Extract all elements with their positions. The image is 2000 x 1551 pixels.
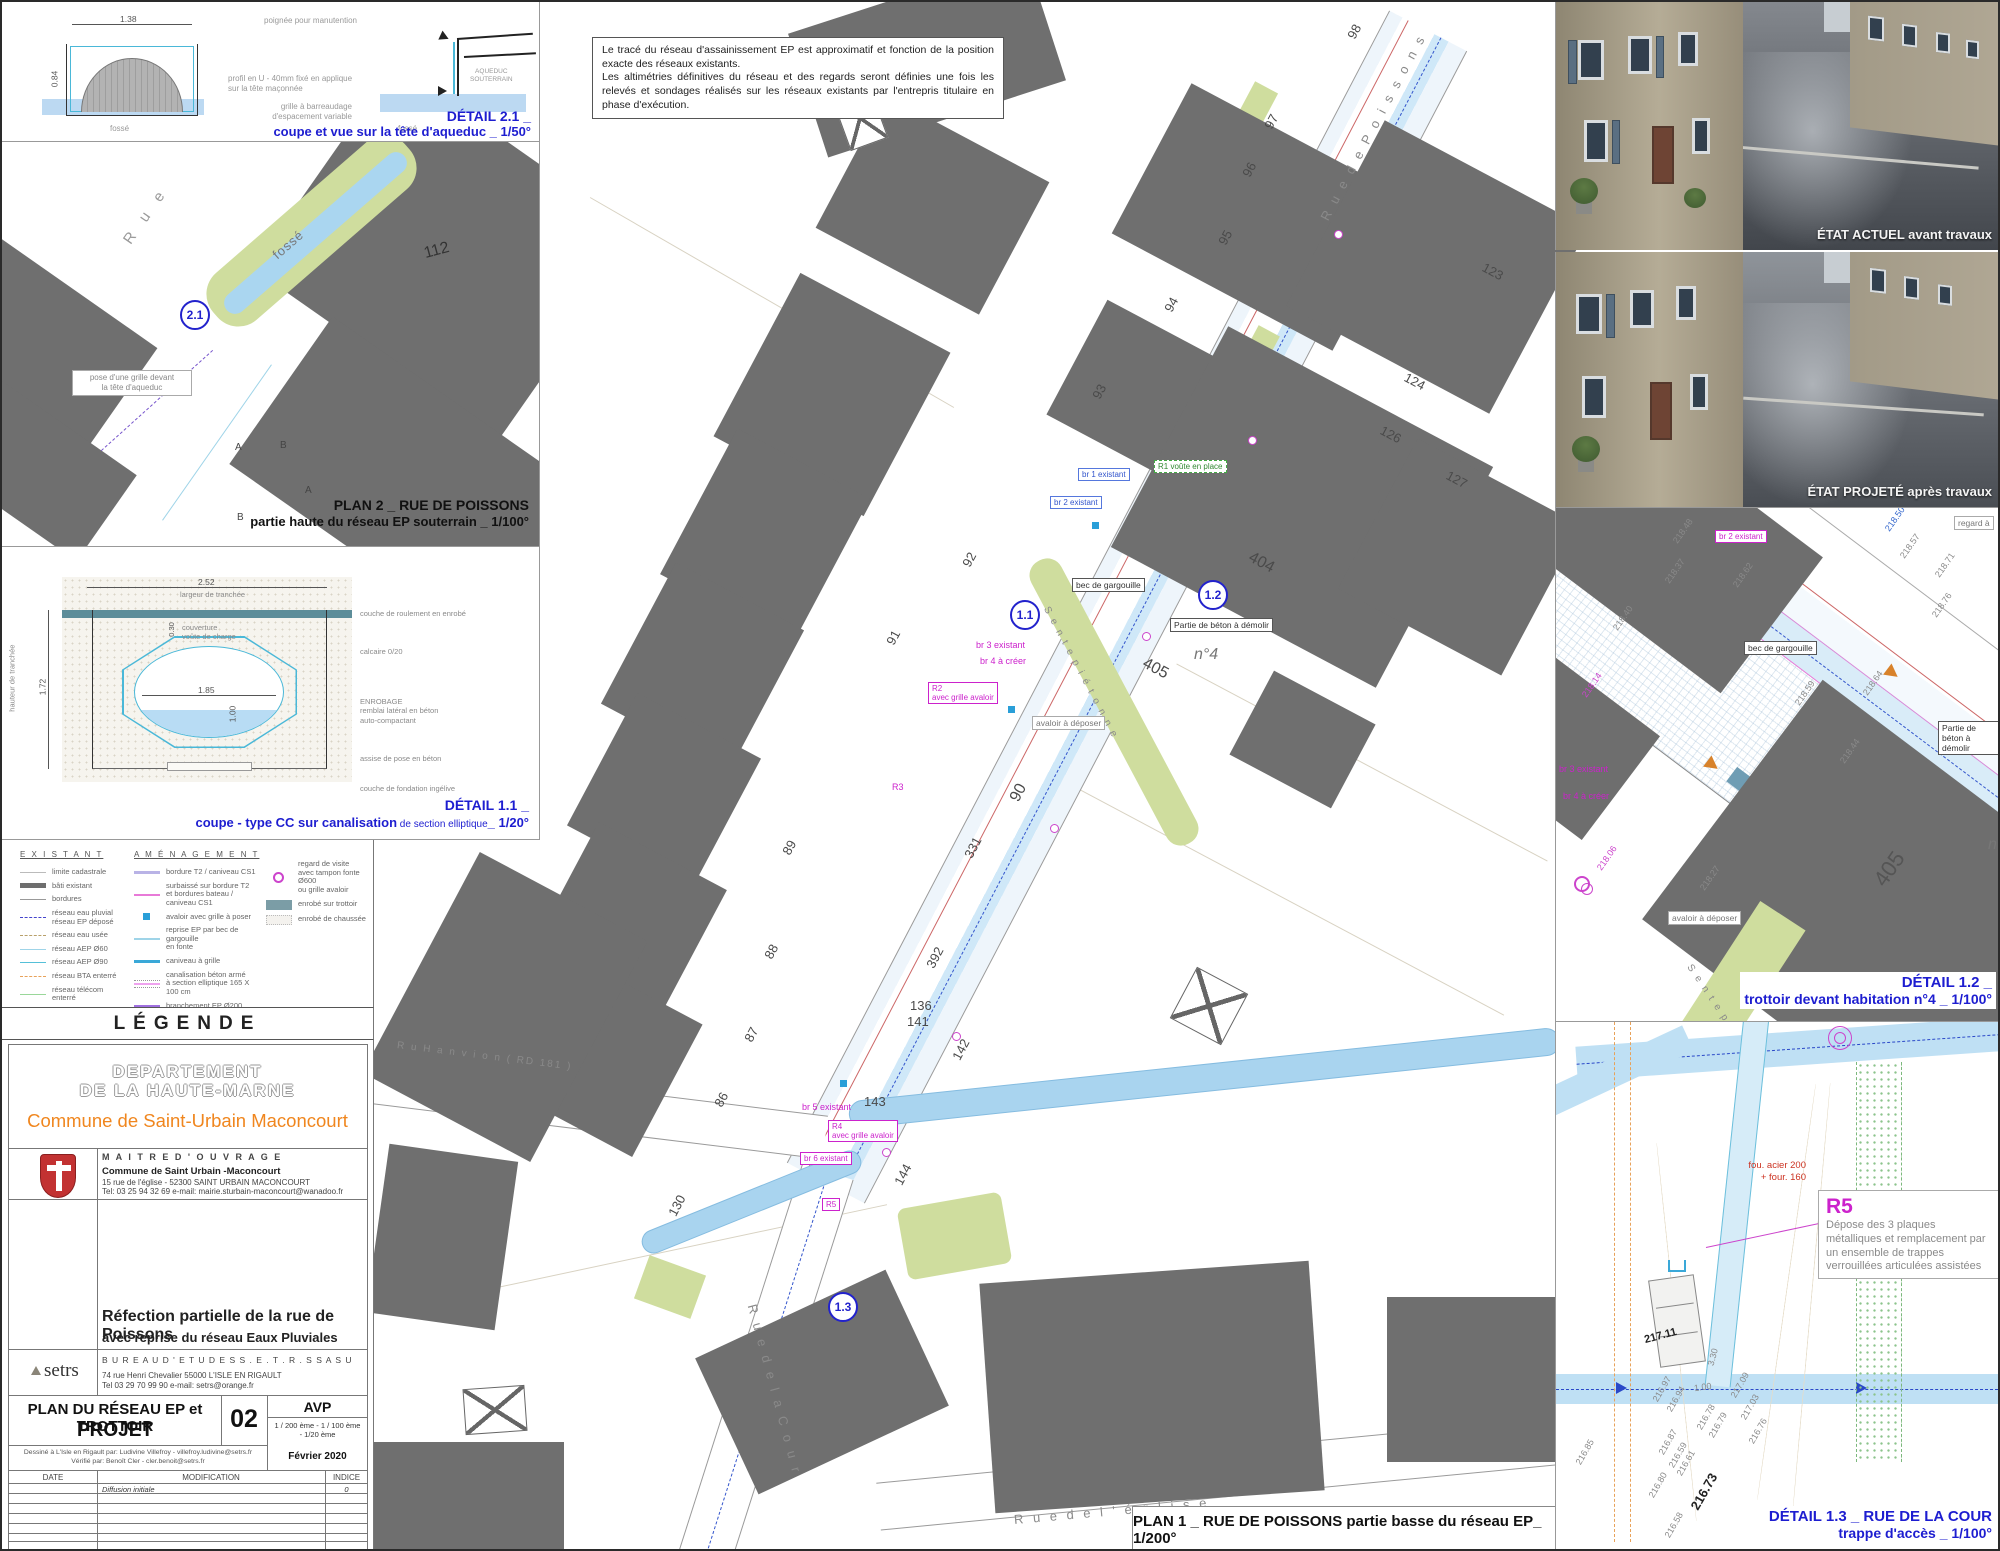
river-band: [847, 1027, 1561, 1130]
legend-item-label: canalisation béton armé à section ellipt…: [166, 971, 262, 997]
detail-reference: 2.1: [180, 300, 210, 330]
legend-item-label: réseau AEP Ø60: [52, 945, 108, 954]
building: [374, 1442, 564, 1551]
elevation-value: 216.61: [1675, 1449, 1697, 1478]
be-address: 74 rue Henri Chevalier 55000 L'ISLE EN R…: [102, 1371, 282, 1380]
detail12-subtitle: trottoir devant habitation n°4 _ 1/100°: [1744, 991, 1992, 1007]
ground-line: [457, 33, 533, 40]
manhole-symbol: [1142, 632, 1151, 641]
dim-line-v: [48, 610, 49, 769]
legend-banner: LÉGENDE: [2, 1007, 374, 1040]
legend-item: enrobé sur trottoir: [266, 900, 370, 910]
legend-swatch: [20, 883, 46, 888]
panel-detail-1-2: 218.14218.37218.40218.48218.50218.57218.…: [1555, 507, 2000, 1022]
building: [366, 1144, 518, 1330]
photo-left-facade: [1556, 2, 1743, 250]
street-name: R u e: [120, 184, 172, 248]
legend-surfaces: regard de visite avec tampon fonte Ø600 …: [266, 860, 370, 925]
cadastral-line: [1176, 663, 1547, 861]
legend-swatch: [20, 962, 46, 963]
photo-etat-actuel: ÉTAT ACTUEL avant travaux: [1555, 2, 2000, 250]
elevation-value: 216.80: [1647, 1471, 1669, 1500]
legend-item: bordures: [20, 895, 125, 904]
photo-left-facade: [1556, 252, 1743, 507]
dim-height: 0.84: [49, 71, 59, 88]
legend-swatch: [20, 935, 46, 936]
material-label: couche de fondation ingélive: [360, 784, 455, 793]
panel-detail-2-1: 1.38 0.84 fossé poignée pour manutention…: [2, 2, 540, 142]
detail13-caption: DÉTAIL 1.3 _ RUE DE LA COUR trappe d'acc…: [1765, 1506, 1996, 1543]
dim-cover: 0.30: [167, 622, 176, 637]
legend-item: avaloir avec grille à poser: [134, 913, 262, 922]
detail11-subtitle: coupe - type CC sur canalisation de sect…: [195, 815, 529, 830]
legend-item: reprise EP par bec de gargouille en font…: [134, 926, 262, 952]
legend-swatch: [20, 994, 46, 995]
dim-top-label: largeur de tranchée: [180, 590, 245, 599]
be-title: B U R E A U D ' E T U D E S S . E . T . …: [102, 1355, 353, 1365]
plan-annotation: br 1 existant: [1078, 468, 1130, 481]
legend-swatch: [20, 917, 46, 918]
parcel-number: 87: [741, 1025, 761, 1045]
elevation-value: 216.78: [1695, 1403, 1717, 1432]
detail11-subtitle-small: de section elliptique: [397, 819, 488, 830]
elevation-value: 218.71: [1933, 551, 1957, 579]
legend-amenagement: bordure T2 / caniveau CS1 surbaissé sur …: [134, 868, 262, 1010]
note-line2: Les altimétries définitives du réseau et…: [602, 71, 994, 112]
legend-item-label: réseau télécom enterré: [52, 986, 125, 1003]
material-label: couche de roulement en enrobé: [360, 609, 466, 618]
legend-item-label: reprise EP par bec de gargouille en font…: [166, 926, 262, 952]
building: [1387, 1297, 1555, 1462]
parcel-number: 91: [883, 628, 903, 648]
legend-item-label: surbaissé sur bordure T2 et bordures bat…: [166, 882, 262, 908]
contour-line: [1757, 1084, 1816, 1500]
legend-swatch: [134, 871, 160, 874]
dept-line2: DE LA HAUTE-MARNE: [2, 1081, 373, 1101]
inlet-symbol: [1092, 522, 1099, 529]
moa-address: 15 rue de l'église - 52300 SAINT URBAIN …: [102, 1178, 310, 1187]
commune-title: Commune de Saint-Urbain Maconcourt: [2, 1110, 373, 1132]
panel-plan2: R u e fossé 112 2.1 pose d'une grille de…: [2, 142, 540, 547]
gas-line: [1614, 1022, 1615, 1542]
grille-edge-line: [453, 42, 455, 94]
note-line1: Le tracé du réseau d'assainissement EP e…: [602, 44, 994, 71]
plan-sheet: 9897969594939291908988878612312412612740…: [0, 0, 2000, 1551]
building: [979, 1261, 1324, 1513]
plan2-title: PLAN 2 _ RUE DE POISSONS: [334, 497, 529, 513]
elevation-value: 218.50: [1883, 507, 1907, 533]
note-box: Le tracé du réseau d'assainissement EP e…: [592, 37, 1004, 119]
r5-note: R5 Dépose des 3 plaques métalliques et r…: [1818, 1190, 2000, 1279]
r5-text: Dépose des 3 plaques métalliques et remp…: [1826, 1219, 1994, 1274]
legend-item-label: enrobé sur trottoir: [298, 900, 357, 909]
detail11-subtitle-bold: coupe - type CC sur canalisation: [195, 815, 397, 830]
date-label: Février 2020: [267, 1451, 368, 1462]
dim-line: [87, 587, 327, 588]
legend-item: regard de visite avec tampon fonte Ø600 …: [266, 860, 370, 895]
legend-item: canalisation béton armé à section ellipt…: [134, 971, 262, 997]
manhole-symbol: [1248, 436, 1257, 445]
bta-line: [1630, 1022, 1631, 1542]
legend-item: bordure T2 / caniveau CS1: [134, 868, 262, 877]
arrow-icon: [438, 31, 450, 44]
sheet-number: 02: [221, 1405, 267, 1434]
building: [1229, 671, 1375, 809]
legend-item-label: bordures: [52, 895, 82, 904]
dim-line: [72, 24, 192, 25]
cover-label: couverture voûte de charge: [182, 623, 236, 642]
setrs-logo: setrs: [44, 1360, 79, 1382]
legend-col2-title: A M É N A G E M E N T: [134, 850, 259, 859]
poignee-label: poignée pour manutention: [264, 16, 357, 26]
plan-annotation: br 4 à créer: [980, 656, 1026, 666]
legend-swatch: [20, 872, 46, 873]
manhole-symbol: [952, 1032, 961, 1041]
stream-band: [1556, 1374, 2000, 1404]
r5-title: R5: [1826, 1195, 1994, 1219]
dim-inner-h: 1.00: [227, 706, 237, 723]
legend-swatch: [20, 949, 46, 950]
dim-left-label: hauteur de tranchée: [7, 645, 16, 712]
legend-item: réseau AEP Ø60: [20, 945, 125, 954]
legend-item: réseau AEP Ø90: [20, 958, 125, 967]
elevation-value: 218.06: [1595, 844, 1619, 872]
parcel-number: 89: [779, 838, 799, 858]
dim-line: [142, 695, 276, 696]
legend-item: réseau eau pluvial réseau EP déposé: [20, 909, 125, 926]
fourreau-label: fou. acier 200 + four. 160: [1726, 1160, 1806, 1185]
legend-item: bâti existant: [20, 882, 125, 891]
grille-callout: pose d'une grille devant la tête d'aqued…: [72, 370, 192, 396]
legend-item-label: réseau eau pluvial réseau EP déposé: [52, 909, 114, 926]
legend-item: réseau BTA enterré: [20, 972, 125, 981]
drawn-by: Dessiné à L'Isle en Rigault par: Ludivin…: [9, 1449, 267, 1456]
legend-swatch: [134, 980, 160, 988]
elevation-value: 216.87: [1657, 1428, 1679, 1457]
moa-contact: Tel: 03 25 94 32 69 e-mail: mairie.sturb…: [102, 1187, 343, 1196]
plan-annotation: R3: [892, 782, 904, 792]
parcel-number: 98: [1344, 22, 1364, 42]
legend-swatch: [134, 894, 160, 896]
plan-annotation: R2 avec grille avaloir: [928, 682, 998, 704]
detail12-caption: DÉTAIL 1.2 _ trottoir devant habitation …: [1740, 972, 1996, 1009]
cadastral-line: [1080, 789, 1504, 1015]
dim-width: 1.38: [120, 14, 137, 24]
legend-item: caniveau à grille: [134, 957, 262, 966]
elevation-value: 216.58: [1663, 1511, 1685, 1540]
legend-item-label: réseau BTA enterré: [52, 972, 116, 981]
access-trap-plates: [1648, 1274, 1706, 1368]
legend-swatch: [266, 900, 292, 910]
legend-swatch: [134, 960, 160, 963]
inlet-symbol: [840, 1080, 847, 1087]
legend-swatch: [143, 913, 150, 920]
th-modification: MODIFICATION: [97, 1473, 325, 1482]
flow-arrow-icon: [1616, 1382, 1627, 1394]
plan-annotation: br 3 existant: [976, 640, 1025, 650]
material-label: assise de pose en béton: [360, 754, 441, 763]
detail13-subtitle: trappe d'accès _ 1/100°: [1769, 1525, 1992, 1541]
manhole-symbol: [1050, 824, 1059, 833]
legend-swatch: [273, 872, 284, 883]
plan-annotation: regard à: [1954, 516, 1994, 530]
panel-detail-1-3: R5 Dépose des 3 plaques métalliques et r…: [1555, 1022, 2000, 1551]
dim-inner-w: 1.85: [198, 685, 215, 695]
be-contact: Tel 03 29 70 99 90 e-mail: setrs@orange.…: [102, 1381, 254, 1390]
legend-swatch: [134, 938, 160, 940]
manhole-symbol: [882, 1148, 891, 1157]
compass-circle: [1828, 1026, 1852, 1050]
plan2-subtitle: partie haute du réseau EP souterrain _ 1…: [250, 514, 529, 529]
elevation-value: 216.79: [1707, 1411, 1729, 1440]
legend-item: enrobé de chaussée: [266, 915, 370, 925]
grille-label: grille à barreaudage d'espacement variab…: [272, 102, 352, 121]
legend-swatch: [266, 915, 292, 925]
material-label: calcaire 0/20: [360, 647, 403, 656]
canal-band: [1705, 1022, 1770, 1387]
legend-item-label: avaloir avec grille à poser: [166, 913, 251, 922]
legend-item-label: réseau eau usée: [52, 931, 108, 940]
parcel-number: 144: [891, 1161, 914, 1187]
legend-item-label: bordure T2 / caniveau CS1: [166, 868, 256, 877]
legend-item-label: regard de visite avec tampon fonte Ø600 …: [298, 860, 370, 895]
trap-bracket: [1668, 1260, 1686, 1272]
head-wall-line: [457, 38, 459, 96]
moa-name: Commune de Saint Urbain -Maconcourt: [102, 1166, 280, 1177]
panel-titleblock: DEPARTEMENT DE LA HAUTE-MARNE Commune de…: [2, 1040, 374, 1551]
fosse-label-1: fossé: [110, 124, 129, 134]
photo1-caption: ÉTAT ACTUEL avant travaux: [1817, 227, 1992, 242]
detail11-title: DÉTAIL 1.1 _: [445, 797, 529, 813]
legend-item: surbaissé sur bordure T2 et bordures bat…: [134, 882, 262, 908]
inlet-symbol: [1008, 706, 1015, 713]
legend-item: réseau télécom enterré: [20, 986, 125, 1003]
legend-swatch: [20, 899, 46, 900]
legend-existant: limite cadastrale bâti existant bordures…: [20, 868, 125, 1017]
parcel-number: 142: [949, 1036, 972, 1062]
commune-crest: [40, 1154, 76, 1198]
photo-etat-projete: ÉTAT PROJETÉ après travaux: [1555, 252, 2000, 507]
moa-title: M A I T R E D ' O U V R A G E: [102, 1152, 282, 1162]
th-indice: INDICE: [325, 1473, 368, 1482]
scales-line2: - 1/20 ème: [267, 1430, 368, 1439]
contour-line: [1792, 1083, 1830, 1511]
th-date: DATE: [9, 1473, 97, 1482]
parcel-number: 88: [761, 942, 781, 962]
crossing-symbol: [1170, 967, 1248, 1045]
arrow-icon: [438, 86, 447, 96]
detail21-title: DÉTAIL 2.1 _: [447, 108, 531, 124]
panel-detail-1-1: 2.52 largeur de tranchée 1.72 hauteur de…: [2, 547, 540, 840]
green-patch: [897, 1191, 1013, 1280]
section-mark: B: [237, 512, 244, 523]
crossing-symbol: [462, 1385, 527, 1435]
pipe-water: [135, 710, 283, 737]
plan1-caption: PLAN 1 _ RUE DE POISSONS partie basse du…: [1132, 1506, 1555, 1551]
detail13-title: DÉTAIL 1.3 _ RUE DE LA COUR: [1769, 1508, 1992, 1525]
elevation-value: 216.85: [1574, 1438, 1596, 1467]
photo2-caption: ÉTAT PROJETÉ après travaux: [1808, 484, 1992, 499]
dim-top: 2.52: [198, 577, 215, 587]
detail12-title: DÉTAIL 1.2 _: [1744, 974, 1992, 991]
legend-item-label: bâti existant: [52, 882, 92, 891]
legend-item-label: réseau AEP Ø90: [52, 958, 108, 967]
elevation-labels: 216.85216.80216.73216.87216.59216.61216.…: [1556, 1022, 2000, 1551]
aqueduct-head-section: [66, 44, 198, 116]
scales-line1: 1 / 200 ème - 1 / 100 ème: [267, 1421, 368, 1430]
elevation-value: 218.57: [1898, 532, 1922, 560]
profil-label: profil en U - 40mm fixé en applique sur …: [228, 74, 352, 93]
plan-annotation: n°4: [1194, 646, 1218, 664]
legend-col1-title: E X I S T A N T: [20, 850, 103, 859]
checked-by: Vérifié par: Benoît Cler - cler.benoit@s…: [9, 1458, 267, 1465]
elevation-value: 216.59: [1667, 1441, 1689, 1470]
legend-item: réseau eau usée: [20, 931, 125, 940]
manhole-symbol: [1574, 876, 1590, 892]
phase-label: AVP: [267, 1399, 368, 1415]
plan-title2: PROJET: [9, 1420, 221, 1442]
legend-item-label: enrobé de chaussée: [298, 915, 366, 924]
parcel-number: 94: [1161, 295, 1181, 315]
parcel-number: 92: [959, 550, 979, 570]
dim-left: 1.72: [37, 679, 47, 696]
legend-item-label: limite cadastrale: [52, 868, 106, 877]
legend-item: limite cadastrale: [20, 868, 125, 877]
panel-legend: E X I S T A N T limite cadastrale bâti e…: [2, 840, 374, 1007]
photo-right-houses: [1850, 2, 2000, 146]
legend-swatch: [20, 976, 46, 977]
photo-right-houses: [1850, 252, 2000, 400]
pipe-bedding: [167, 762, 252, 771]
plan1-caption-text: PLAN 1 _ RUE DE POISSONS partie basse du…: [1133, 1513, 1547, 1547]
detail11-subtitle-scale: _ 1/20°: [488, 815, 529, 830]
detail-reference: 1.1: [1010, 600, 1040, 630]
green-patch: [634, 1255, 706, 1319]
manhole-symbol: [1334, 230, 1343, 239]
project-title2: avec reprise du réseau Eaux Pluviales: [102, 1330, 338, 1345]
legend-item-label: caniveau à grille: [166, 957, 220, 966]
plan-annotation: br 2 existant: [1050, 496, 1102, 509]
ground-line-2: [464, 52, 536, 58]
material-label: ENROBAGE remblai latéral en béton auto-c…: [360, 697, 438, 725]
detail21-subtitle: coupe et vue sur la tête d'aqueduc _ 1/5…: [273, 124, 531, 139]
dept-line1: DEPARTEMENT: [2, 1062, 373, 1082]
aqueduc-label: AQUEDUC SOUTERRAIN: [470, 68, 513, 84]
